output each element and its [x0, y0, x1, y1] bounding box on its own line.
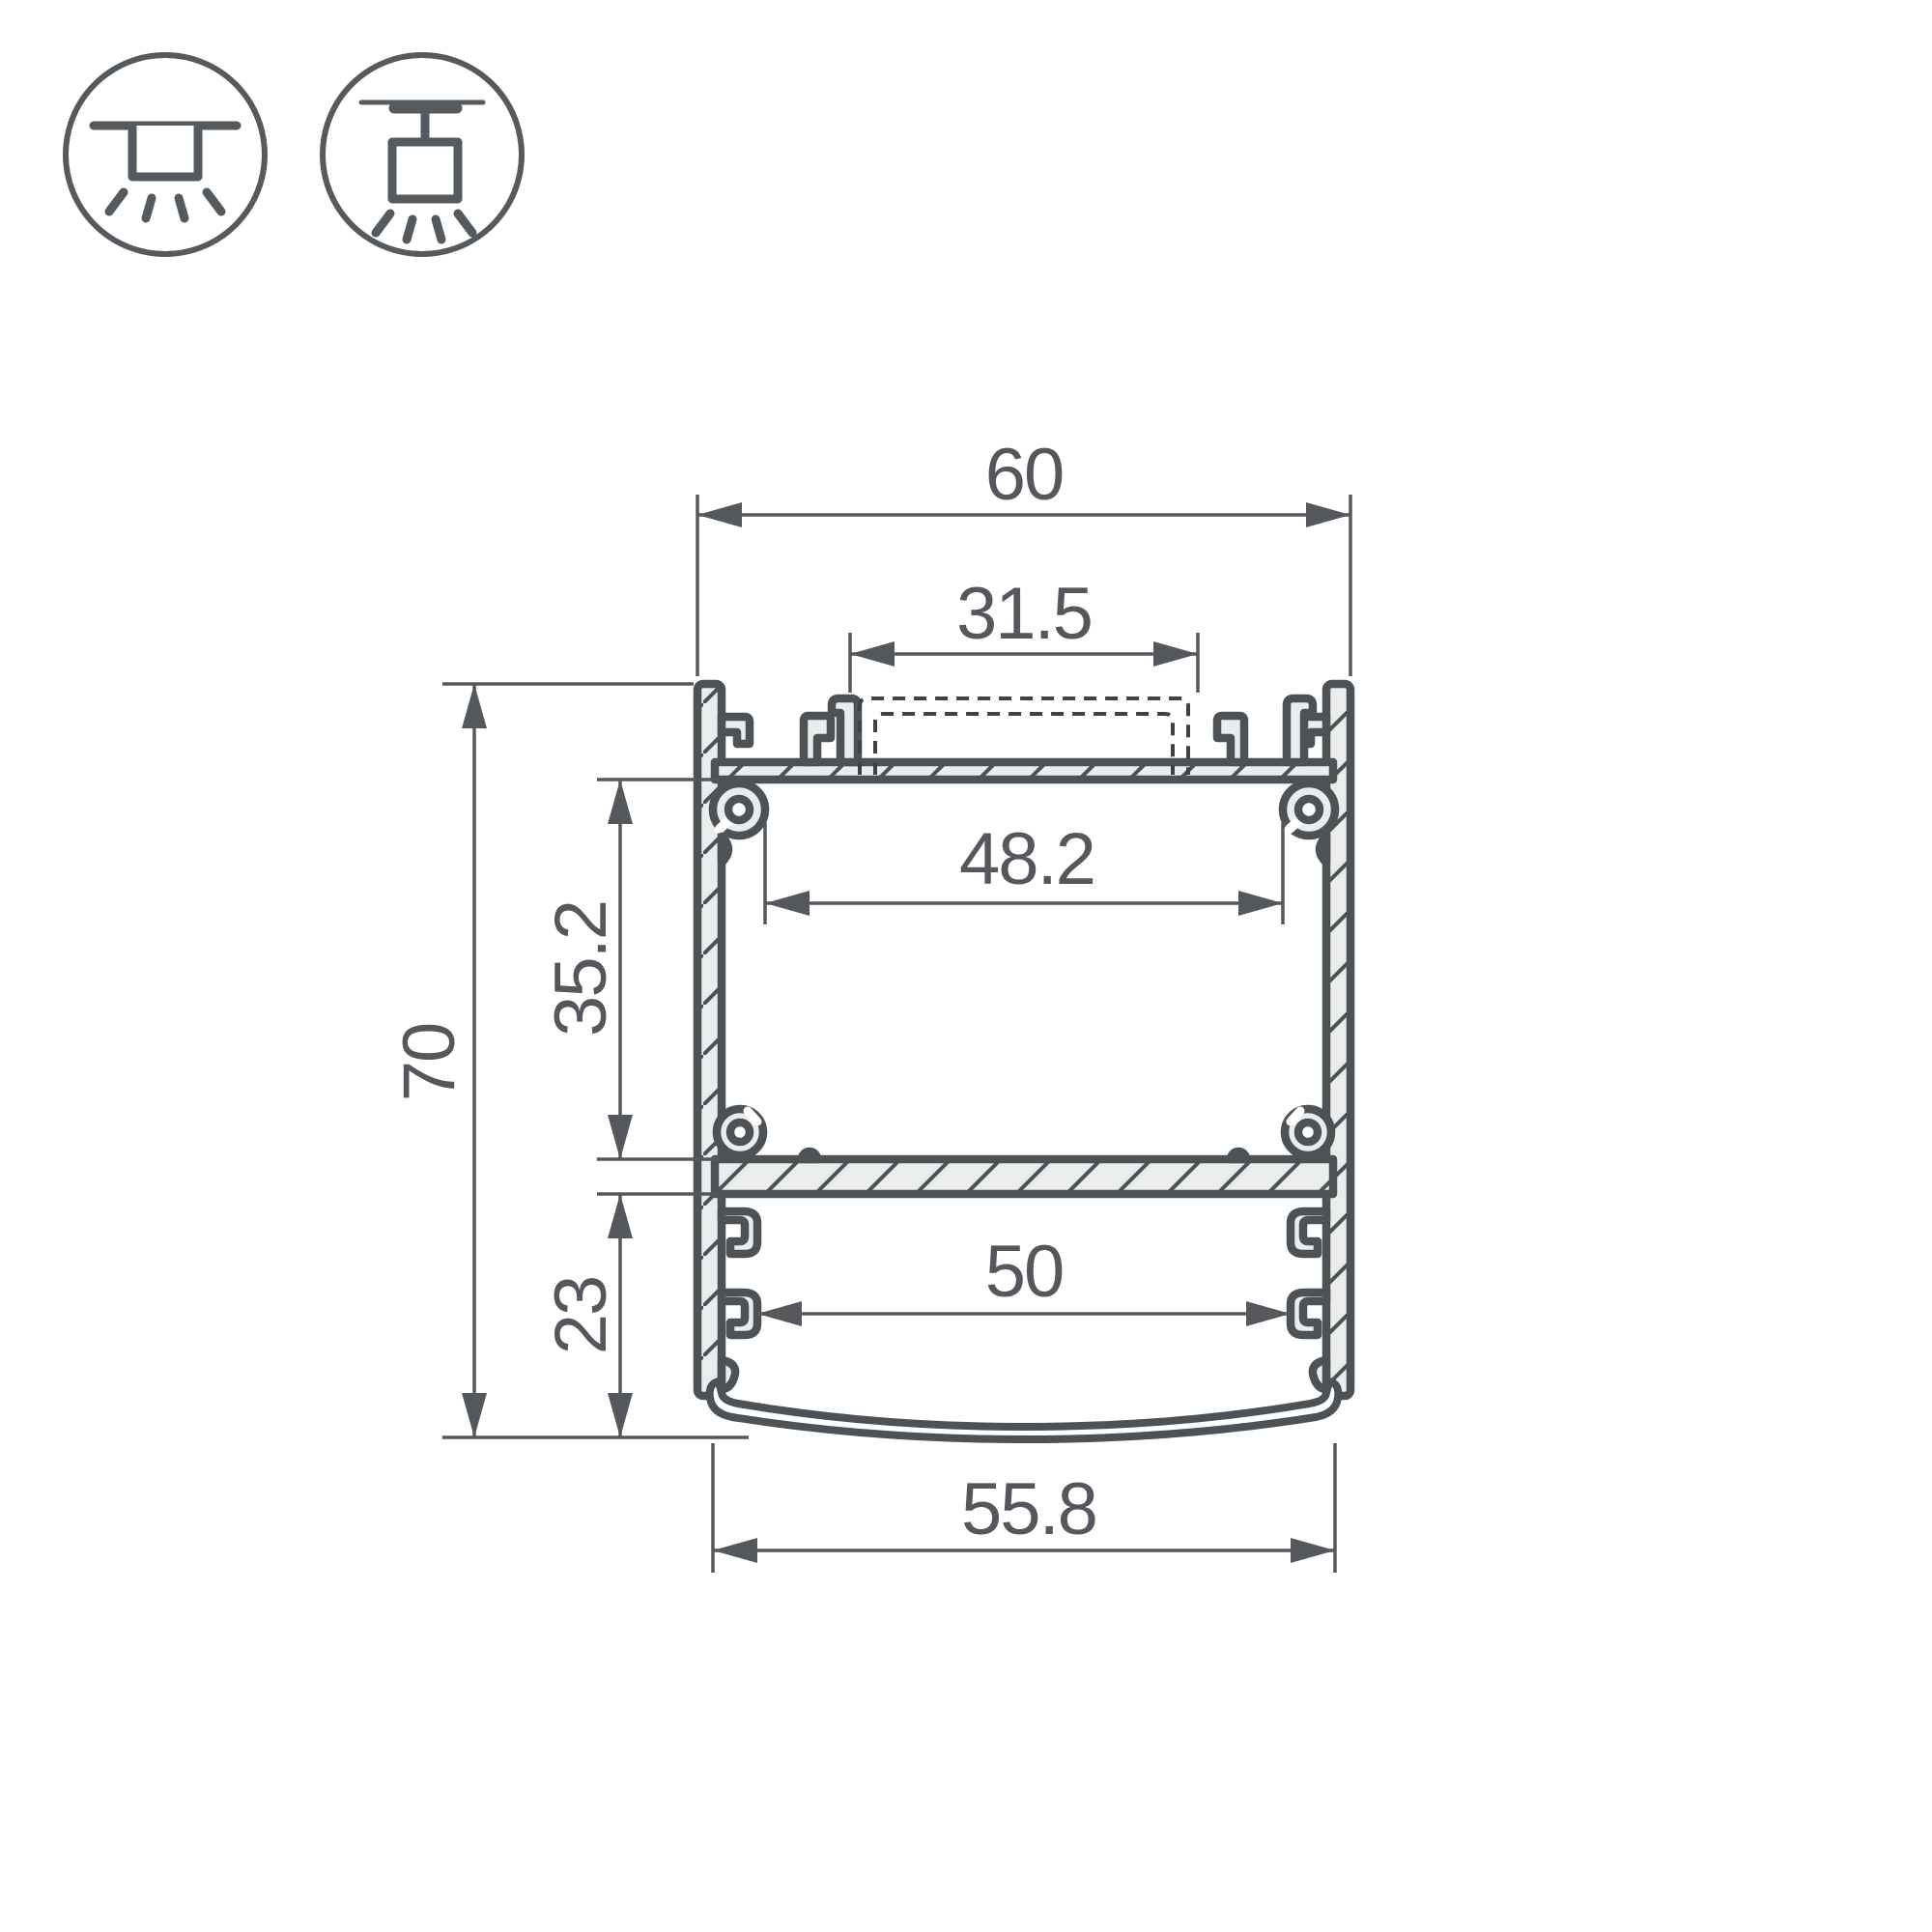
lower-right-clip [1291, 1293, 1326, 1335]
profile-cross-section [697, 684, 1350, 1439]
mount-icons [66, 55, 522, 254]
left-slot-hook [832, 698, 858, 762]
middle-plate [715, 1159, 1333, 1194]
dim-upper-chamber-height: 35.2 [540, 780, 719, 1159]
dim-diffuser-width: 55.8 [713, 1443, 1335, 1573]
dim-lower-inner-width: 50 [757, 1231, 1291, 1326]
upper-left-screw-boss [713, 783, 765, 863]
left-diffuser-nub [722, 1360, 735, 1389]
dim-top-slot-width-label: 31.5 [956, 573, 1092, 655]
right-top-tab [1217, 716, 1244, 762]
upper-right-clip [1291, 1211, 1326, 1254]
upper-right-screw-boss [1283, 783, 1335, 863]
dim-top-slot-width: 31.5 [850, 573, 1198, 693]
left-mount-flange [722, 717, 750, 744]
dim-lower-chamber-height-label: 23 [540, 1277, 622, 1355]
lower-left-clip [722, 1293, 757, 1335]
middle-plate-rib [802, 1151, 817, 1159]
dim-upper-inner-width: 48.2 [765, 818, 1283, 924]
dim-overall-height-label: 70 [388, 1024, 470, 1102]
middle-plate-rib [1231, 1151, 1246, 1159]
right-diffuser-nub [1313, 1360, 1326, 1389]
dim-lower-inner-width-label: 50 [985, 1231, 1064, 1313]
lower-left-screw-boss [717, 1109, 763, 1155]
dim-upper-inner-width-label: 48.2 [959, 818, 1094, 900]
surface-ceiling-mount-icon [66, 55, 265, 254]
drawing-canvas: 60 31.5 48.2 70 [0, 0, 1932, 1932]
upper-left-clip [722, 1211, 757, 1254]
lower-right-screw-boss [1285, 1109, 1331, 1155]
suspended-pendant-mount-icon [323, 55, 522, 254]
diffuser-lens [710, 1381, 1339, 1439]
profile-drawing: 60 31.5 48.2 70 [0, 0, 1932, 1932]
dim-overall-width-label: 60 [985, 434, 1064, 516]
left-top-tab [804, 716, 831, 762]
dim-diffuser-width-label: 55.8 [961, 1468, 1096, 1550]
dim-lower-chamber-height: 23 [540, 1194, 719, 1437]
dim-upper-chamber-height-label: 35.2 [540, 901, 622, 1037]
dimensions: 60 31.5 48.2 70 [388, 434, 1350, 1573]
